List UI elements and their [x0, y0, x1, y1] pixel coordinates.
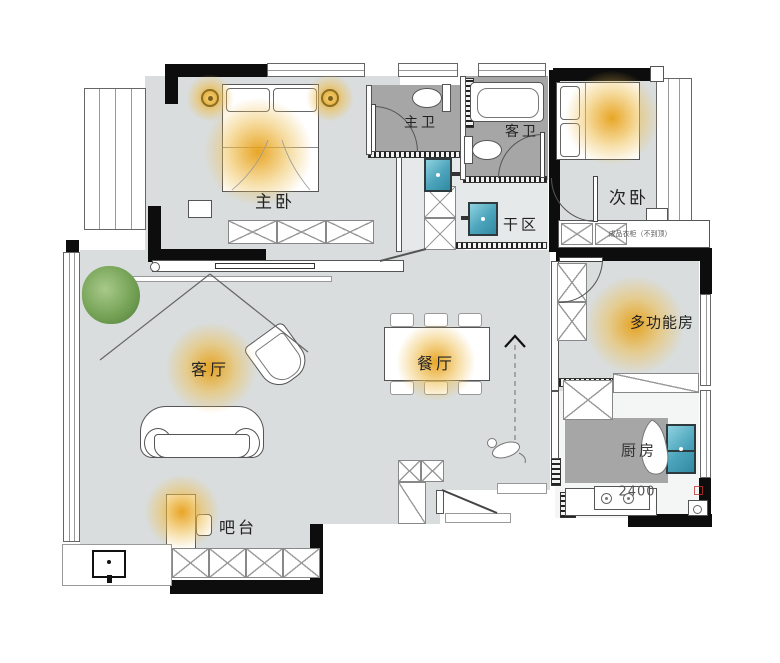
wall-lamp-icon — [201, 89, 219, 107]
kitchen-sink-icon — [666, 424, 696, 474]
door-frame — [436, 490, 444, 514]
room-label-dry-area: 干区 — [503, 214, 539, 235]
plant-icon — [82, 266, 140, 324]
red-stamp-icon — [694, 486, 703, 495]
door-sill — [455, 242, 547, 249]
interior-wall — [551, 391, 559, 459]
door-sill — [368, 151, 460, 158]
wall-lamp-icon — [321, 89, 339, 107]
dining-chair — [458, 381, 482, 395]
faucet-icon — [461, 216, 469, 220]
entry-step — [497, 483, 547, 494]
room-label-living: 客厅 — [191, 356, 229, 380]
wall — [165, 64, 178, 104]
cabinet-icon — [209, 548, 246, 578]
bed-icon — [556, 82, 640, 160]
wall — [700, 250, 712, 294]
gas-meter-icon — [688, 500, 708, 516]
bar-stool-icon — [196, 514, 212, 536]
room-label-master-bedroom: 主卧 — [255, 188, 295, 213]
dining-chair — [390, 313, 414, 327]
window — [700, 294, 711, 386]
toilet-tank — [442, 84, 451, 112]
door-leaf — [593, 176, 598, 222]
window — [63, 252, 80, 542]
bathtub-icon — [470, 82, 544, 122]
toilet-icon — [412, 88, 442, 108]
room-label-multi-room: 多功能房 — [630, 312, 694, 333]
dining-chair — [390, 381, 414, 395]
wall — [170, 580, 322, 594]
cabinet-icon — [246, 548, 283, 578]
shoe-cabinet-icon — [398, 460, 421, 482]
entry-step — [445, 513, 511, 523]
dining-chair — [424, 313, 448, 327]
shoe-cabinet-icon — [421, 460, 444, 482]
cabinet-icon — [563, 380, 613, 420]
shelf — [613, 373, 699, 393]
window — [398, 63, 458, 77]
laundry-sink-icon — [92, 550, 126, 578]
room-label-dining: 餐厅 — [417, 350, 455, 374]
dining-chair — [458, 313, 482, 327]
room-label-guest-bath: 客卫 — [505, 121, 539, 141]
faucet-icon — [452, 172, 460, 176]
washbasin-icon — [424, 158, 452, 192]
interior-wall — [396, 157, 402, 252]
cabinet-icon — [557, 302, 587, 341]
dining-chair — [424, 381, 448, 395]
window — [478, 63, 546, 77]
shoe-cabinet-icon — [398, 482, 426, 524]
cabinet-icon — [424, 218, 456, 250]
wall — [66, 240, 79, 252]
corner-post — [650, 66, 664, 82]
entry-door-leaf — [442, 490, 497, 513]
tv-icon — [215, 263, 315, 269]
washbasin-icon — [468, 202, 498, 236]
room-label-kitchen: 厨房 — [621, 440, 657, 461]
wall — [553, 68, 650, 81]
window — [84, 88, 146, 230]
room-label-second-bedroom: 次卧 — [609, 184, 649, 209]
floor-plan: 主卧 主卫 客卫 次卧 干区 多功能房 厨房 餐厅 客厅 吧台 成品衣柜（不到顶… — [0, 0, 780, 663]
door-leaf — [559, 257, 603, 262]
cabinet-icon — [283, 548, 320, 578]
bed-icon — [222, 84, 319, 192]
toilet-icon — [472, 140, 502, 160]
dimension-text: 2400 — [618, 485, 655, 500]
room-label-bar: 吧台 — [219, 514, 257, 538]
door-leaf — [540, 132, 545, 178]
wardrobe-note: 成品衣柜（不到顶） — [609, 229, 672, 239]
speaker-icon — [150, 262, 160, 272]
window — [700, 390, 711, 478]
interior-wall — [460, 76, 466, 180]
room-label-master-bath: 主卫 — [404, 112, 438, 132]
wall — [165, 64, 267, 77]
cabinet-icon — [172, 548, 209, 578]
nightstand — [188, 200, 212, 218]
window — [267, 63, 365, 77]
door-leaf — [371, 104, 376, 152]
door-sill — [551, 458, 561, 486]
